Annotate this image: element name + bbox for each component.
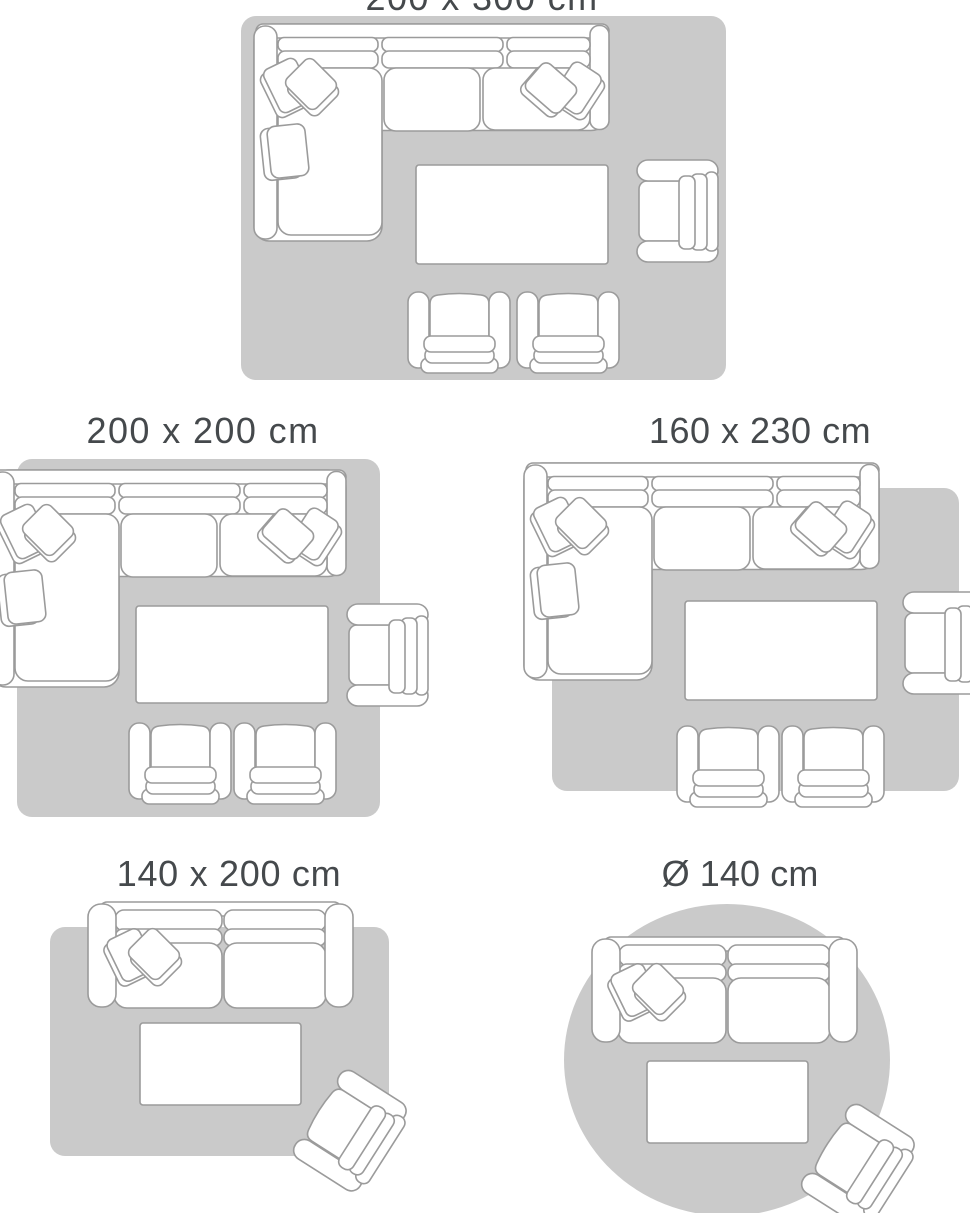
svg-text:200 x 300 cm: 200 x 300 cm <box>366 0 599 18</box>
svg-text:160 x 230 cm: 160 x 230 cm <box>649 410 871 451</box>
svg-text:200 x 200 cm: 200 x 200 cm <box>87 410 320 451</box>
svg-text:Ø 140 cm: Ø 140 cm <box>662 853 819 894</box>
svg-text:140 x 200 cm: 140 x 200 cm <box>117 853 342 894</box>
